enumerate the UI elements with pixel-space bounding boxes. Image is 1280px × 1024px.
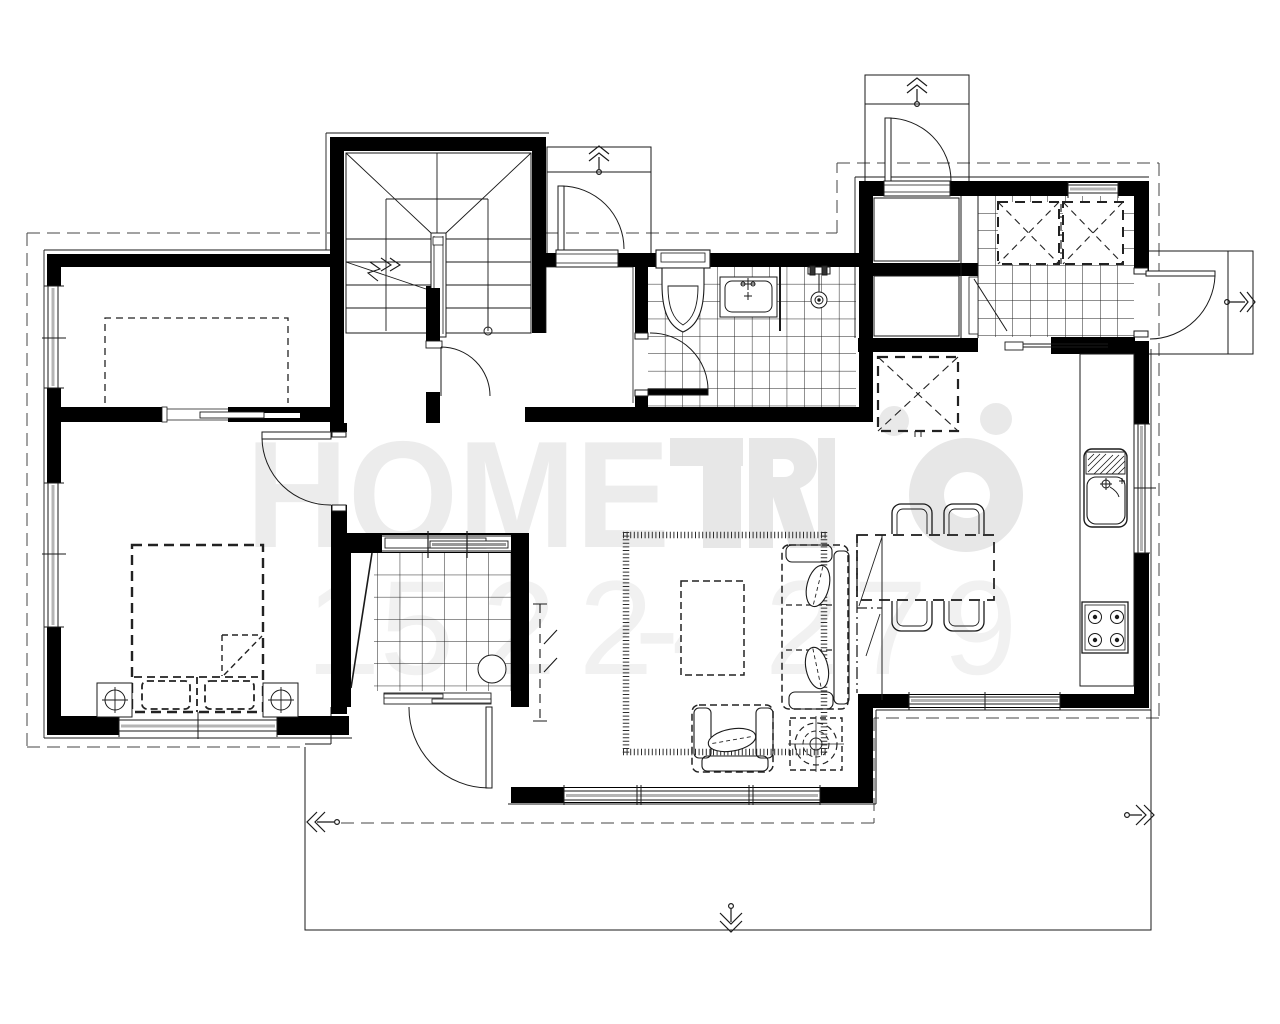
svg-text:9: 9 [943, 554, 1018, 703]
svg-text:7: 7 [853, 554, 928, 703]
